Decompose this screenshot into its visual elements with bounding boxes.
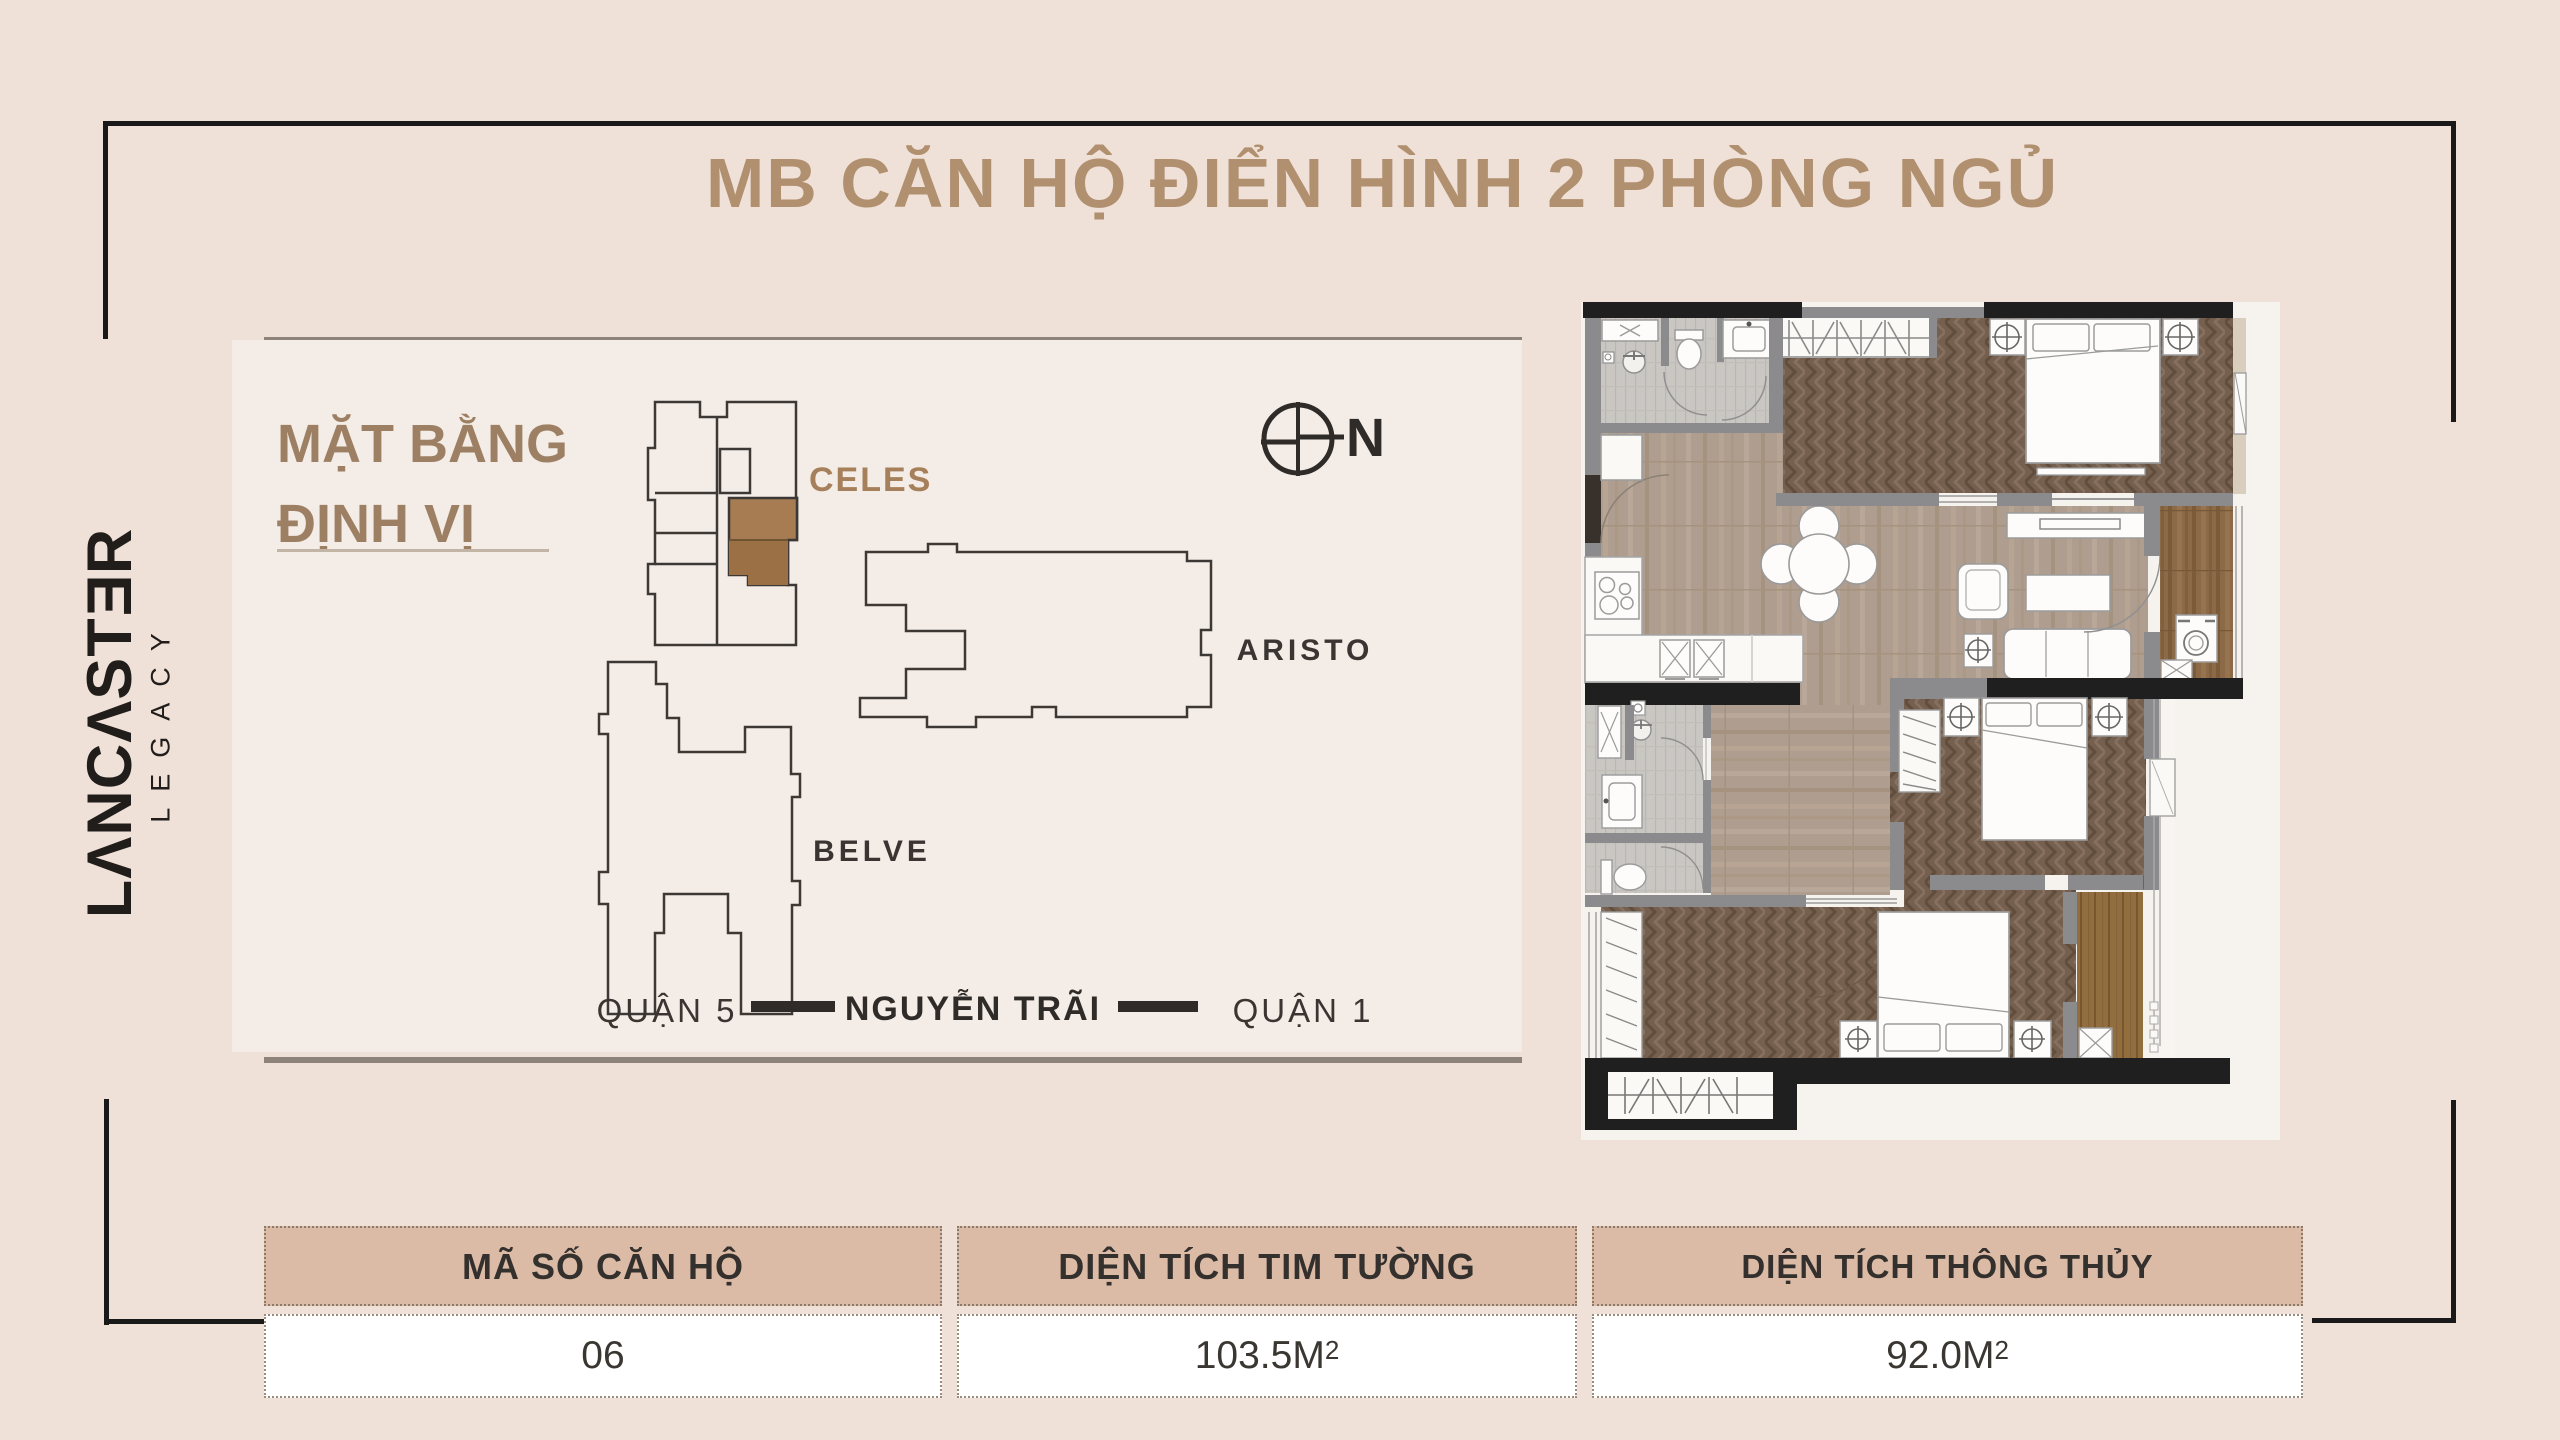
svg-text:QUẬN 5: QUẬN 5 <box>597 992 738 1029</box>
svg-text:N: N <box>1346 408 1385 468</box>
svg-text:MẶT BẰNG: MẶT BẰNG <box>277 414 568 474</box>
svg-text:QUẬN 1: QUẬN 1 <box>1233 992 1374 1029</box>
svg-text:ĐỊNH VỊ: ĐỊNH VỊ <box>277 494 475 554</box>
svg-text:BELVE: BELVE <box>813 835 931 868</box>
svg-text:NGUYỄN TRÃI: NGUYỄN TRÃI <box>845 990 1101 1028</box>
svg-text:CELES: CELES <box>809 461 932 499</box>
svg-text:ARISTO: ARISTO <box>1237 634 1374 667</box>
